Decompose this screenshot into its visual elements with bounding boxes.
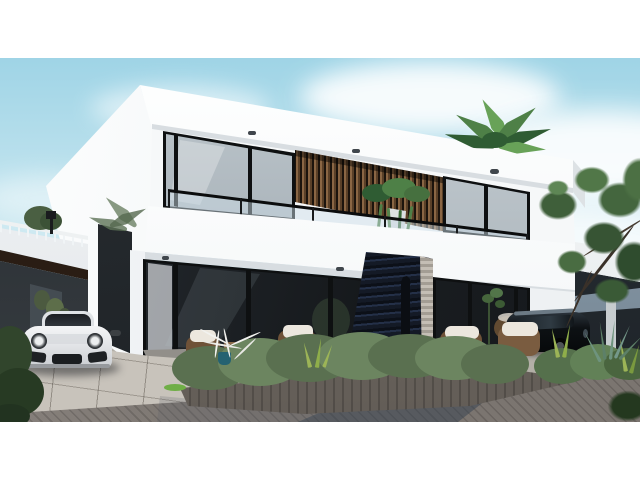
soffit-spotlight [336,267,344,271]
tree-canopy [544,178,572,198]
roof-palm-crown [482,132,508,148]
sofa-cushion [502,322,538,336]
potted-plant-leaves [495,300,505,308]
frame-border-bottom [0,422,640,480]
frame-border-top [0,0,640,58]
soffit-spotlight [162,256,169,260]
soffit-spotlight [248,131,256,135]
white-car-headlight-left [31,333,47,349]
potted-plant-leaves [490,288,503,298]
white-car-intake-center [52,354,82,364]
hanging-plant-foliage [404,186,430,202]
soffit-spotlight [490,169,499,174]
render-canvas [0,0,640,480]
grass-patch [164,384,186,391]
white-car-mirror-right [110,330,121,336]
tree-canopy [552,246,592,278]
white-car-headlight-right [87,333,103,349]
hedge [461,344,529,384]
tree-canopy [588,274,636,308]
white-car-splitter [24,364,110,368]
soffit-spotlight [352,149,360,153]
